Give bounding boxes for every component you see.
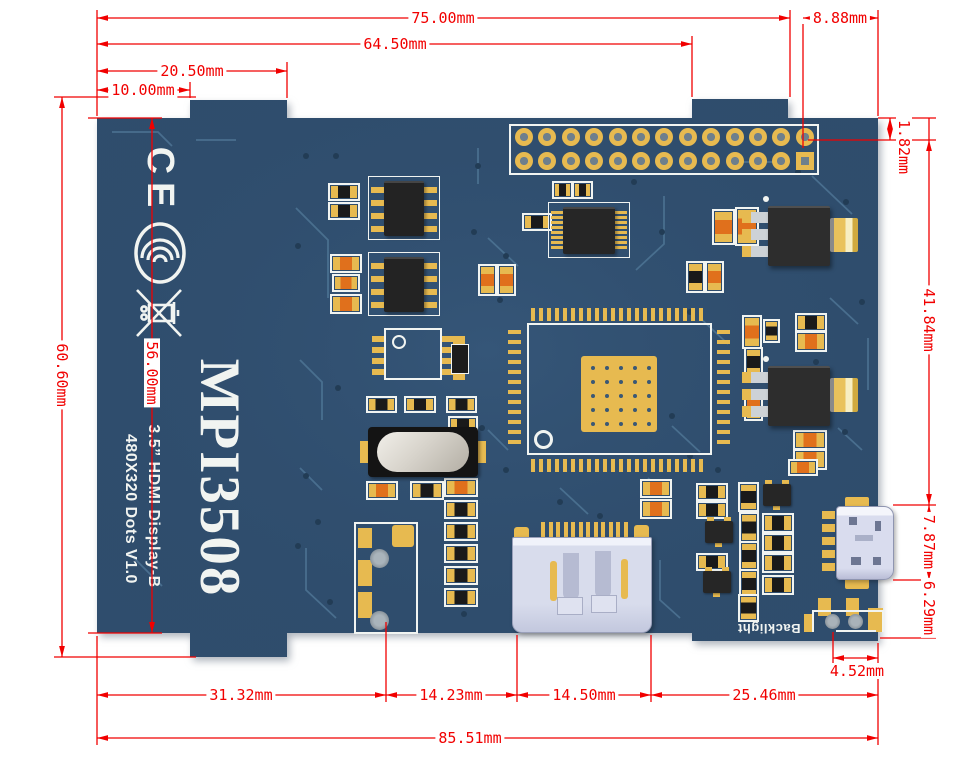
dim-label-right-pin-offset: 1.82mm [896, 117, 912, 177]
dim-label-bottom-1: 31.32mm [206, 687, 275, 703]
board-subtitle-line1: 3.5” HDMI Display-B [144, 396, 162, 616]
dim-label-left-inner: 56.00mm [144, 338, 160, 407]
board-model-text: MPI3508 [188, 343, 250, 613]
dim-label-bottom-overall: 85.51mm [435, 730, 504, 746]
dim-label-top-overall: 75.00mm [408, 10, 477, 26]
dim-label-right-mid: 41.84mm [921, 285, 937, 354]
dim-label-bottom-2: 14.23mm [416, 687, 485, 703]
dim-label-bottom-3: 14.50mm [549, 687, 618, 703]
dim-label-top-tab-right: 20.50mm [157, 63, 226, 79]
ccc-mark-icon [132, 222, 188, 286]
dim-label-top-notch: 64.50mm [360, 36, 429, 52]
dim-label-right-lower: 6.29mm [921, 578, 937, 638]
dim-label-top-tab-left: 10.00mm [108, 82, 177, 98]
dim-label-backlight-pad: 4.52mm [827, 663, 887, 679]
dim-label-right-usb: 7.87mm [921, 512, 937, 572]
backlight-label: Backlight [730, 620, 808, 636]
board-subtitle-line2: 480X320 Dots V1.0 [121, 397, 139, 621]
dim-label-left-outer: 60.60mm [54, 340, 70, 409]
dim-label-top-right: 8.88mm [810, 10, 870, 26]
pcb-dimension-drawing: CE MPI3508 3.5” HDMI Display-B 480X320 D… [0, 0, 965, 766]
weee-crossed-bin-icon [128, 286, 188, 340]
dim-label-bottom-4: 25.46mm [729, 687, 798, 703]
ce-mark-icon: CE [138, 139, 182, 223]
